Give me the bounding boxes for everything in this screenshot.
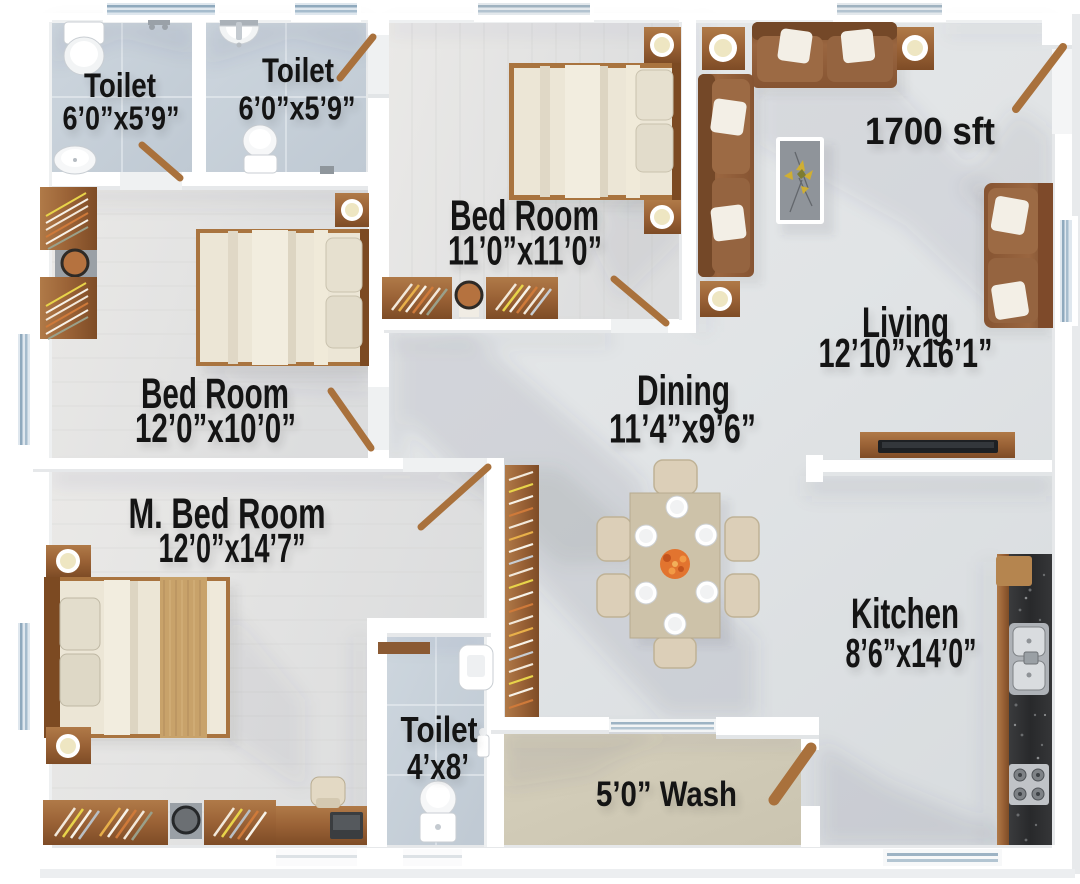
svg-text:12’0”x10’0”: 12’0”x10’0”: [135, 405, 296, 451]
svg-text:6’0”x5’9”: 6’0”x5’9”: [63, 100, 180, 137]
svg-text:8’6”x14’0”: 8’6”x14’0”: [846, 630, 977, 676]
svg-text:12’0”x14’7”: 12’0”x14’7”: [159, 525, 306, 571]
svg-text:5’0” Wash: 5’0” Wash: [596, 775, 737, 814]
svg-text:12’10”x16’1”: 12’10”x16’1”: [819, 330, 993, 376]
svg-text:Toilet: Toilet: [262, 52, 334, 90]
svg-text:6’0”x5’9”: 6’0”x5’9”: [239, 90, 356, 127]
svg-text:1700 sft: 1700 sft: [865, 111, 995, 153]
svg-text:4’x8’: 4’x8’: [407, 746, 469, 787]
svg-text:11’0”x11’0”: 11’0”x11’0”: [448, 228, 602, 274]
svg-text:11’4”x9’6”: 11’4”x9’6”: [609, 406, 756, 452]
svg-text:Toilet: Toilet: [401, 709, 478, 750]
